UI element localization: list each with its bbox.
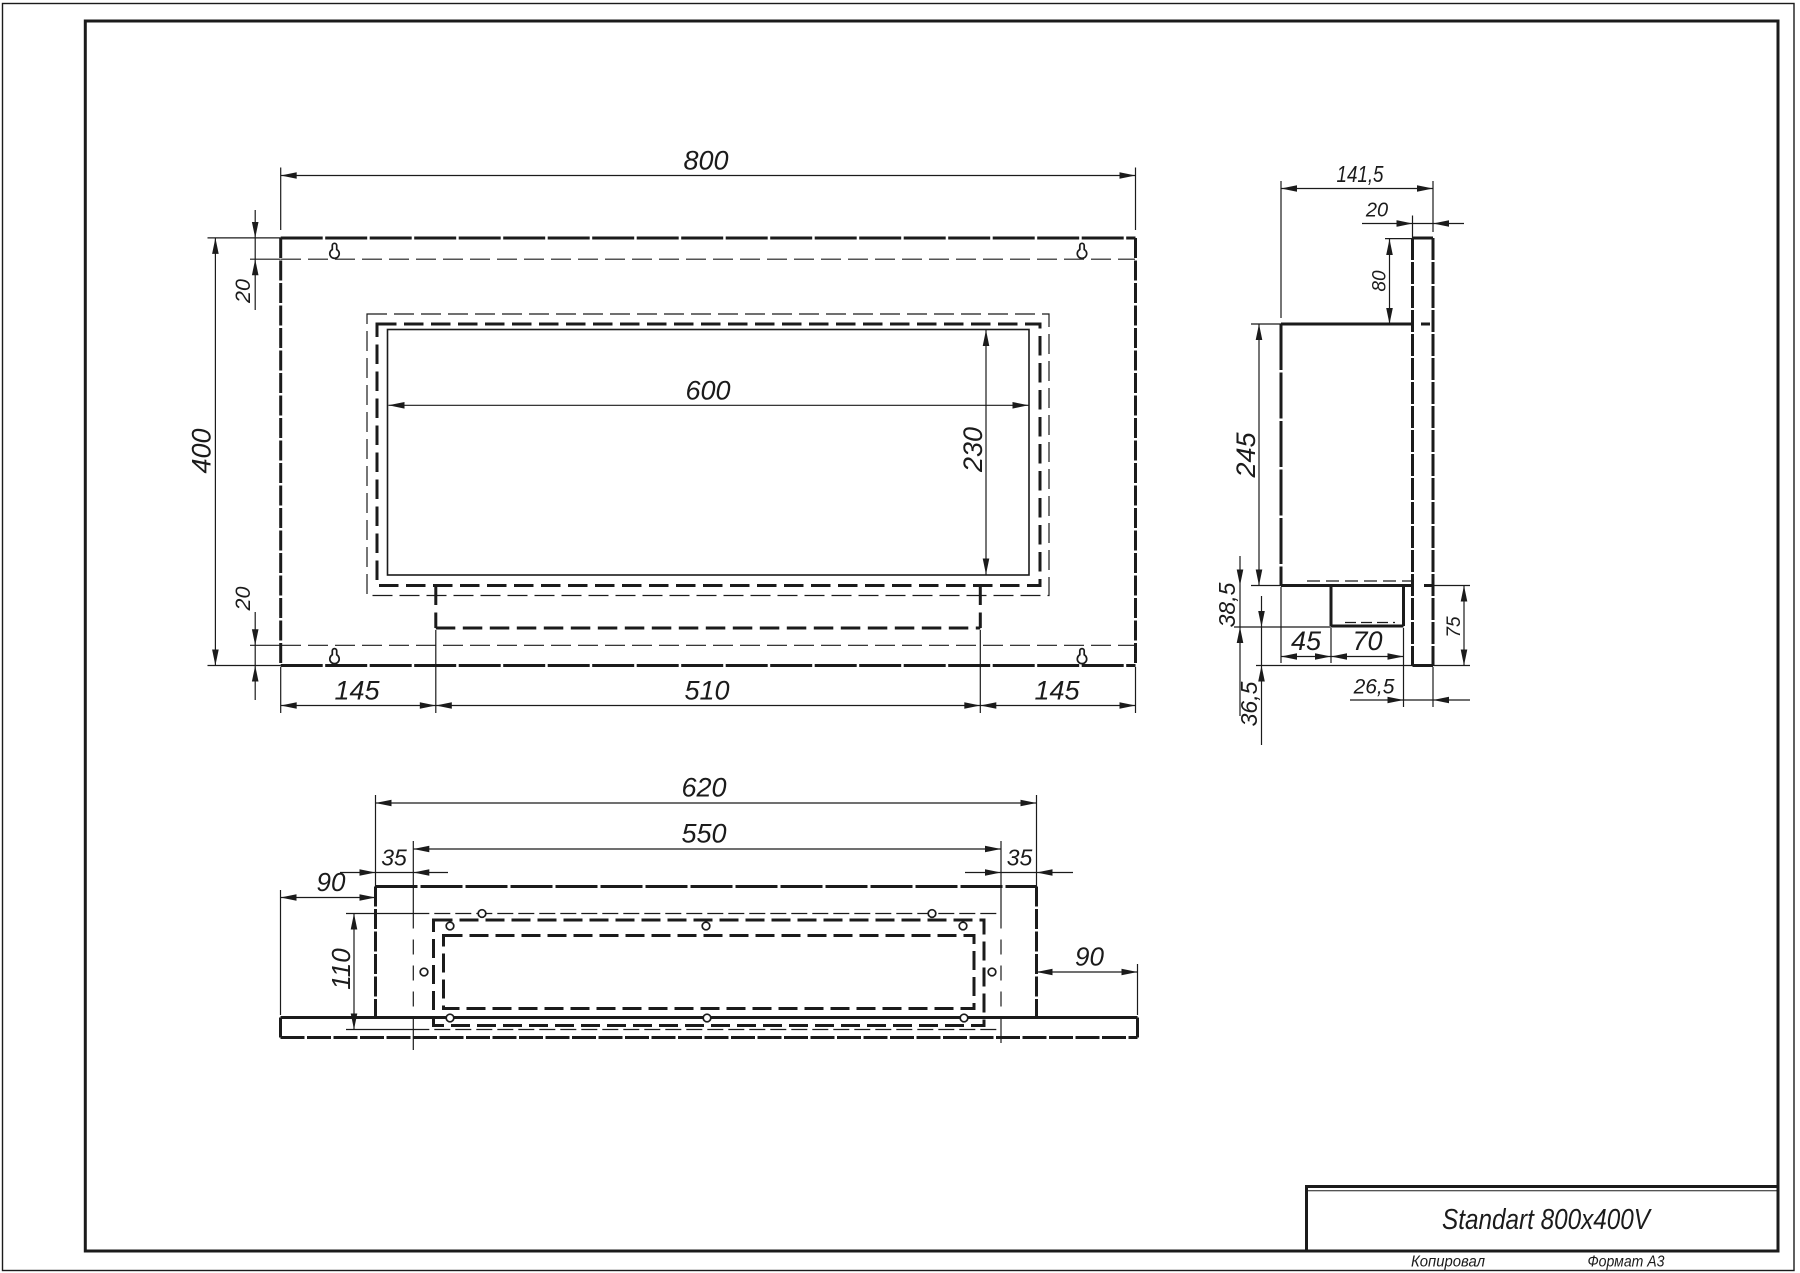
svg-text:800: 800 [683,146,728,176]
svg-text:45: 45 [1291,626,1322,656]
svg-text:80: 80 [1370,270,1391,292]
svg-text:600: 600 [685,376,730,406]
svg-text:70: 70 [1352,626,1382,656]
svg-text:145: 145 [334,676,380,706]
svg-text:35: 35 [1007,845,1033,871]
svg-text:75: 75 [1444,616,1465,638]
svg-text:Формат А3: Формат А3 [1588,1254,1665,1271]
svg-text:245: 245 [1231,431,1261,478]
svg-text:Standart 800x400V: Standart 800x400V [1442,1204,1652,1236]
svg-text:20: 20 [231,279,255,304]
svg-text:20: 20 [231,587,255,612]
svg-text:510: 510 [684,676,729,706]
svg-text:620: 620 [681,773,726,803]
svg-text:36,5: 36,5 [1236,681,1262,726]
svg-text:110: 110 [326,948,356,990]
svg-text:26,5: 26,5 [1353,676,1395,699]
svg-text:Копировал: Копировал [1411,1254,1485,1271]
svg-text:90: 90 [317,867,346,897]
svg-text:400: 400 [186,428,216,473]
svg-text:20: 20 [1365,200,1388,222]
svg-text:35: 35 [381,845,407,871]
svg-text:550: 550 [681,819,726,849]
svg-text:38,5: 38,5 [1214,582,1240,627]
svg-text:230: 230 [958,427,988,473]
svg-text:141,5: 141,5 [1337,161,1384,187]
svg-text:90: 90 [1075,942,1104,972]
svg-text:145: 145 [1034,676,1080,706]
